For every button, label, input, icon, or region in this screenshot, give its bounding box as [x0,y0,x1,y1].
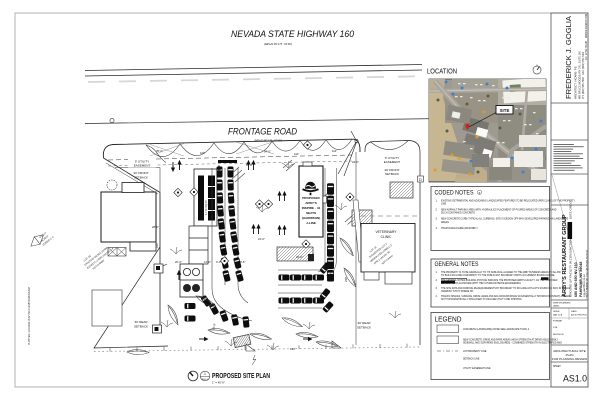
svg-text:PAHRUMP, NV 89048: PAHRUMP, NV 89048 [579,262,583,297]
svg-text:(HARRISON): (HARRISON) [302,216,321,220]
svg-text:34'-0": 34'-0" [264,150,271,154]
svg-text:3.: 3. [436,219,438,221]
svg-text:HARMONY 675 PT WHERE ON: HARMONY 675 PT WHERE ON [441,290,474,293]
svg-text:ARBY'S: ARBY'S [305,201,317,205]
svg-text:20'-0": 20'-0" [175,260,182,264]
svg-text:TRASH ENCLOSURE (MASONRY): TRASH ENCLOSURE (MASONRY) [441,227,478,230]
svg-text:FRONTAGE ROAD: FRONTAGE ROAD [228,127,297,137]
svg-text:1.: 1. [436,201,438,203]
svg-text:100': 100' [200,151,205,155]
svg-text:LINE: LINE [441,204,447,206]
svg-text:J-LINE: J-LINE [306,221,316,225]
svg-text:GENERAL NOTES: GENERAL NOTES [435,261,479,268]
svg-text:NEW ASPHALT PARKING AREA WITH: NEW ASPHALT PARKING AREA WITH HYDRAULICS… [441,209,557,212]
svg-text:AS1.0: AS1.0 [563,374,587,384]
svg-text:SUCH CONTAINED CONCRETE: SUCH CONTAINED CONCRETE [441,212,475,215]
svg-text:TO BUILD INCLUDE CONFORMITY TO: TO BUILD INCLUDE CONFORMITY TO THE PUBLI… [441,274,555,277]
svg-text:NEW CONCRETE: DRIVE AND PARK A: NEW CONCRETE: DRIVE AND PARK AREAS (HIGH… [463,338,559,341]
svg-text:2.: 2. [436,210,438,212]
svg-text:SETBACK: SETBACK [385,172,399,176]
svg-text:25'-0": 25'-0" [156,149,163,153]
svg-text:EASEMENT: EASEMENT [384,160,401,164]
svg-text:110': 110' [294,152,299,156]
svg-text:SHEET/PLANNING: SHEET/PLANNING [553,302,571,305]
svg-text:NOT TOPOGRAPHICALLY DISCLOSED: NOT TOPOGRAPHICALLY DISCLOSED TO INCLUDE… [441,298,522,301]
svg-text:NEW CONCRETE CURB (TYPICAL ALL: NEW CONCRETE CURB (TYPICAL ALL CURBING),… [441,218,569,221]
svg-text:SETBACK: SETBACK [357,326,371,330]
svg-text:(DES-02 PG 173 OF 80'): (DES-02 PG 173 OF 80') [264,43,292,46]
svg-text:1: 1 [204,372,206,376]
svg-text:TRAFFIC SPACES, SURFACE, DRIVE: TRAFFIC SPACES, SURFACE, DRIVE LANES AND… [441,295,571,298]
svg-text:LEGEND: LEGEND [435,315,463,324]
svg-text:24'-0": 24'-0" [258,237,265,241]
svg-text:4.: 4. [436,228,438,230]
svg-text:680 AND 690 NV-160: 680 AND 690 NV-160 [574,262,578,297]
svg-text:110': 110' [332,149,337,153]
svg-text:SHEET:: SHEET: [553,366,561,368]
svg-text:PH: (800) 555-7300 FAX: (800: PH: (800) 555-7300 FAX: (800) 555-7301 [582,51,585,99]
svg-text:LABEL:: LABEL: [553,305,560,308]
svg-text:230': 230' [344,277,348,282]
svg-text:9'-0": 9'-0" [216,260,221,264]
svg-text:LOT/PROPERTY LINE: LOT/PROPERTY LINE [463,351,487,353]
svg-text:REVISION: REVISION [553,334,564,336]
svg-text:GROUND UP FACILITY IN CONJUNCT: GROUND UP FACILITY IN CONJUNCTION WITH [569,230,573,297]
svg-text:230': 230' [155,243,159,248]
svg-text:SETBACK: SETBACK [134,325,148,329]
svg-text:34'-0": 34'-0" [352,160,359,164]
svg-text:EASEMENT: EASEMENT [134,164,151,168]
svg-text:ARCHITECT NCARB PE: ARCHITECT NCARB PE [574,66,578,99]
svg-text:CONCRETE (LANDSCAPE) NOISE SEE: CONCRETE (LANDSCAPE) NOISE SEE LANDSCAPE… [463,328,530,331]
svg-text:SETBACK: SETBACK [134,176,148,180]
svg-text:65'-0": 65'-0" [246,163,253,167]
svg-text:FOR PLANNING REVIEW: FOR PLANNING REVIEW [552,357,587,361]
svg-text:12'-0": 12'-0" [204,260,211,264]
svg-text:20' FRONT: 20' FRONT [133,171,148,175]
svg-text:CLINIC: CLINIC [381,235,392,239]
svg-text:VETERINARY: VETERINARY [375,230,397,234]
svg-text:FREDERICK J. GOGLIA: FREDERICK J. GOGLIA [564,16,573,99]
svg-text:110': 110' [290,347,296,351]
svg-text:20'-0": 20'-0" [296,255,303,259]
svg-text:AS1.0: AS1.0 [202,378,209,381]
svg-text:NEVADA STATE HIGHWAY 160: NEVADA STATE HIGHWAY 160 [231,29,355,39]
svg-text:SITE: SITE [500,108,510,113]
svg-text:PLOTTED: 1/21/2019 12:37 PM K: PLOTTED: 1/21/2019 12:37 PM K:\ARBYS\PAH… [28,287,31,345]
svg-text:THE PROPERTY IS TO BE GRADUALL: THE PROPERTY IS TO BE GRADUALLY TO ITS S… [441,271,562,274]
svg-text:1,770 SQ FT: 1,770 SQ FT [204,200,208,215]
svg-text:PROPOSED: PROPOSED [302,196,320,200]
svg-text:8'-6": 8'-6" [240,260,245,264]
svg-text:(SITE ONLY): (SITE ONLY) [569,202,573,219]
svg-text:SIDEWALL AND SCRAPERS ENCLOSUR: SIDEWALL AND SCRAPERS ENCLOSURES) - COMB… [463,342,562,345]
svg-text:CODED NOTES: CODED NOTES [435,190,474,197]
svg-text:AS NOTED/P.M.: AS NOTED/P.M. [571,314,587,317]
svg-text:AREAS: AREAS [441,221,449,224]
svg-text:30' REAR: 30' REAR [134,320,148,324]
svg-text:UTILITY EASEMENT LINE: UTILITY EASEMENT LINE [463,367,491,370]
svg-text:DATE: DATE [571,310,577,313]
svg-text:30' REAR: 30' REAR [357,321,371,325]
svg-text:THE GENERAL NOTES BUILDING POS: THE GENERAL NOTES BUILDING POSTING INDIC… [441,279,558,282]
svg-text:1" = 40'-0": 1" = 40'-0" [212,381,225,385]
svg-text:PROPOSED SITE PLAN: PROPOSED SITE PLAN [212,373,270,380]
svg-text:2425 S FAIRWAY DR. #300, LAS V: 2425 S FAIRWAY DR. #300, LAS VEGAS, NV 8… [586,249,589,297]
svg-text:WWW.FJGARCH.COM: WWW.FJGARCH.COM [585,14,588,38]
svg-text:28'-0": 28'-0" [152,225,159,229]
svg-text:ISSUE: ISSUE [553,311,560,313]
svg-text:INSPIRE - 44: INSPIRE - 44 [302,206,321,210]
svg-text:JAN 21 A: JAN 21 A [553,314,563,317]
svg-text:EXISTING DETRIMENTAL AND ADJOI: EXISTING DETRIMENTAL AND ADJOINING LANDS… [441,200,575,203]
svg-text:SETBACK LINE: SETBACK LINE [463,358,480,361]
svg-text:FORMAT: FORMAT [553,320,563,323]
svg-text:SEATS: SEATS [306,211,316,215]
svg-text:LIC. LV NV. 89148: LIC. LV NV. 89148 [586,41,588,60]
svg-text:D: D [419,177,422,182]
svg-text:LOCATION: LOCATION [427,69,457,76]
svg-text:JOB: JOB [553,327,558,329]
svg-text:ARBY'S RESTAURANT GROUP: ARBY'S RESTAURANT GROUP [562,214,568,297]
